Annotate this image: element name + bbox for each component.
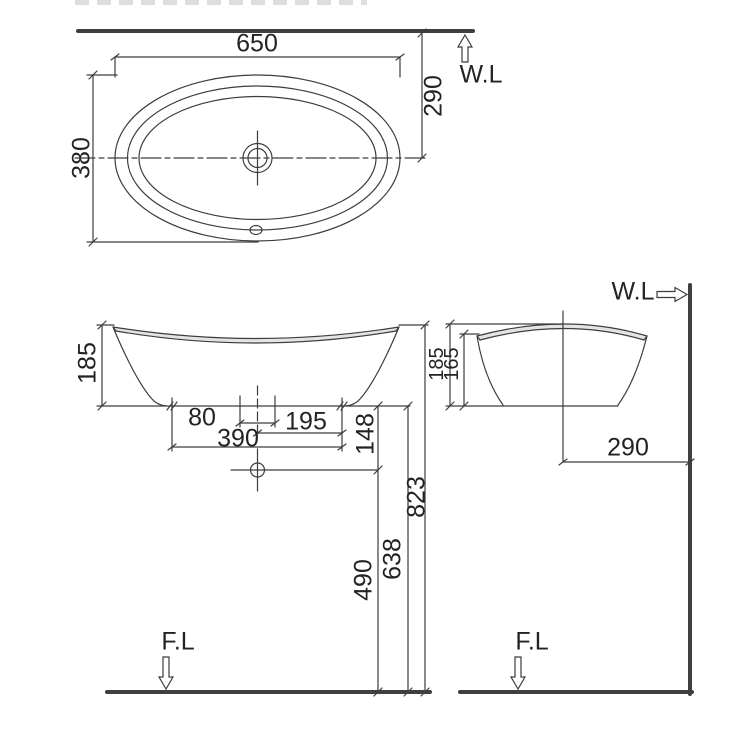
side-floor-arrow-down-icon xyxy=(511,657,525,689)
base-width-label: 390 xyxy=(217,427,259,452)
base-to-drain-label: 148 xyxy=(354,413,379,455)
floor-to-drain-label: 490 xyxy=(352,559,377,601)
water-line-arrow-up-icon xyxy=(458,35,472,62)
drawing-linework xyxy=(0,0,740,740)
plan-view xyxy=(75,29,473,246)
front-drain xyxy=(231,449,378,491)
washbasin-installation-drawing: 650 380 290 W.L 185 80 195 390 148 823 6… xyxy=(0,0,740,740)
side-water-line-label: W.L xyxy=(611,280,654,305)
front-view xyxy=(97,321,430,696)
faucet-span-label: 80 xyxy=(188,406,216,431)
front-height-label: 185 xyxy=(76,342,101,384)
plan-water-line-label: W.L xyxy=(459,63,502,88)
side-view xyxy=(446,285,694,694)
floor-line-arrow-down-icon xyxy=(159,657,173,689)
side-basin-outline xyxy=(477,324,647,406)
center-to-edge-label: 195 xyxy=(285,410,327,435)
plan-wall-offset-label: 290 xyxy=(422,75,447,117)
water-line-arrow-right-icon xyxy=(657,288,687,302)
floor-to-rim-label: 823 xyxy=(405,476,430,518)
side-front-edge-height-label: 165 xyxy=(442,347,462,380)
front-floor-line-label: F.L xyxy=(161,630,194,655)
plan-depth-label: 380 xyxy=(70,137,95,179)
plan-width-label: 650 xyxy=(236,32,278,57)
side-wall-offset-label: 290 xyxy=(607,436,649,461)
front-basin-outline xyxy=(113,327,399,406)
front-rim-shading xyxy=(113,327,399,343)
side-rim-shading xyxy=(477,324,647,340)
side-floor-line-label: F.L xyxy=(515,630,548,655)
floor-to-base-label: 638 xyxy=(381,538,406,580)
